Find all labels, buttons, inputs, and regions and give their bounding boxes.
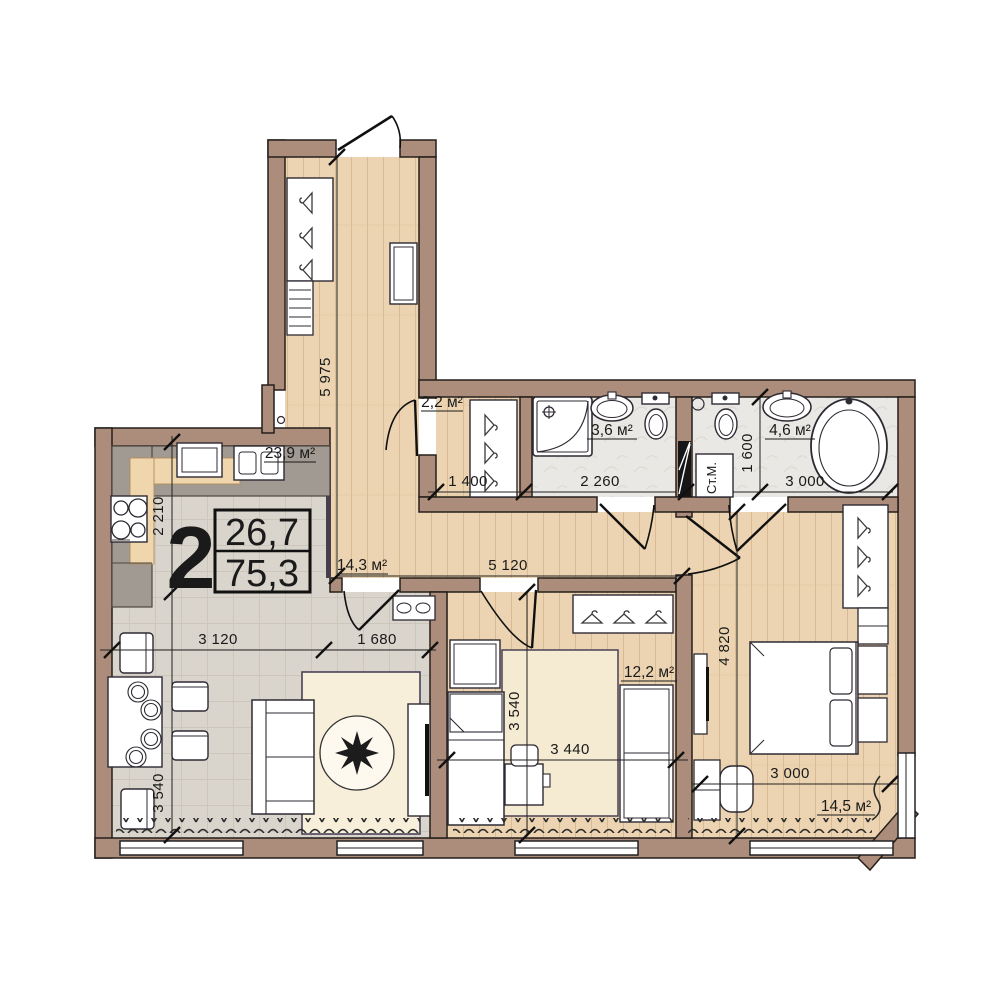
dim-bathroom-small-width: 2 260 bbox=[580, 473, 620, 490]
desk-chair bbox=[511, 745, 538, 766]
floor-plan-drawing: 5 975 2 210 3 540 3 120 1 680 5 120 1 40… bbox=[0, 0, 1000, 1000]
single-bed bbox=[448, 692, 504, 825]
area-label-bedroom-master: 14,5 м² bbox=[821, 798, 871, 815]
dining-table bbox=[108, 677, 162, 767]
tv-stand bbox=[694, 654, 707, 734]
area-label-bathroom-small: 3,6 м² bbox=[591, 422, 633, 439]
radiator-bedroom-master bbox=[688, 818, 872, 833]
area-label-bedroom-small: 12,2 м² bbox=[624, 664, 674, 681]
chair bbox=[172, 731, 208, 760]
dim-bedroom-master-width: 3 000 bbox=[770, 765, 810, 782]
toilet-bowl bbox=[715, 409, 737, 439]
pillow bbox=[830, 648, 852, 694]
pillow bbox=[830, 700, 852, 746]
nightstand bbox=[858, 698, 887, 742]
console-shelf bbox=[393, 596, 435, 620]
chair bbox=[172, 682, 208, 711]
rooms-count: 2 bbox=[167, 508, 216, 607]
plant-icon bbox=[335, 731, 379, 775]
desk bbox=[505, 764, 543, 805]
door-stop bbox=[278, 417, 285, 424]
hanger-shelf bbox=[573, 595, 673, 633]
area-label-kitchen-living: 23,9 м² bbox=[265, 445, 315, 462]
dim-living-width-left: 3 120 bbox=[198, 631, 238, 648]
tub-faucet bbox=[846, 398, 852, 404]
shower bbox=[533, 397, 592, 456]
washing-machine-label: Ст.М. bbox=[704, 462, 719, 494]
faucet bbox=[783, 391, 791, 398]
entrance-door bbox=[338, 116, 400, 150]
chair bbox=[120, 633, 153, 673]
dim-bedroom-small-depth: 3 540 bbox=[506, 691, 523, 731]
radiator-living bbox=[116, 818, 420, 833]
dim-living-width-right: 1 680 bbox=[357, 631, 397, 648]
dim-closet-width: 1 400 bbox=[448, 473, 488, 490]
faucet bbox=[608, 392, 616, 399]
dim-bedroom-master-depth: 4 820 bbox=[716, 626, 733, 666]
total-area-value: 75,3 bbox=[225, 553, 299, 595]
nightstand bbox=[858, 646, 887, 694]
dim-bathroom-large-width: 3 000 bbox=[785, 473, 825, 490]
dresser bbox=[450, 640, 500, 688]
apartment-info-box: 2 26,7 75,3 bbox=[167, 508, 310, 607]
area-label-closet: 2,2 м² bbox=[421, 394, 463, 411]
dim-hallway-width: 5 120 bbox=[488, 557, 528, 574]
dim-bedroom-small-width: 3 440 bbox=[550, 741, 590, 758]
toilet-bowl bbox=[645, 409, 667, 439]
area-label-bathroom-large: 4,6 м² bbox=[769, 422, 811, 439]
floor-hallway bbox=[285, 157, 692, 578]
living-area-value: 26,7 bbox=[225, 512, 299, 554]
floor-plan-page: 5 975 2 210 3 540 3 120 1 680 5 120 1 40… bbox=[0, 0, 1000, 1000]
dim-bathroom-large-depth: 1 600 bbox=[739, 433, 756, 473]
dim-hallway-length: 5 975 bbox=[317, 357, 334, 397]
dim-kitchen-depth: 2 210 bbox=[150, 496, 167, 536]
dim-living-depth: 3 540 bbox=[150, 773, 167, 813]
tv-icon bbox=[425, 724, 429, 796]
area-label-hallway: 14,3 м² bbox=[337, 557, 387, 574]
tv-icon bbox=[706, 667, 709, 721]
radiator-bedroom-small bbox=[453, 818, 673, 833]
